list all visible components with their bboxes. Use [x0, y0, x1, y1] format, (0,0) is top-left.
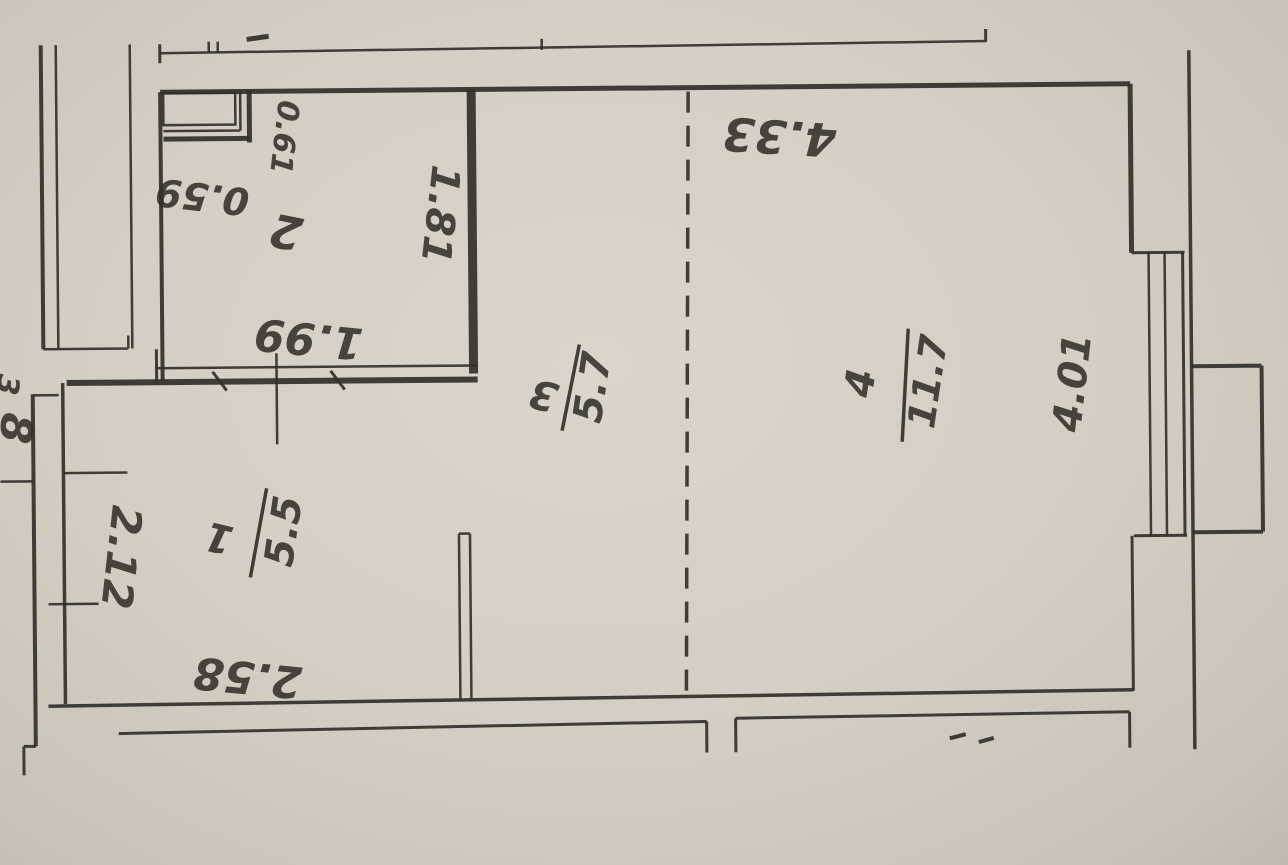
wall-left-foot	[24, 746, 36, 775]
window-tick-upper	[63, 473, 127, 474]
balcony-outline	[1192, 366, 1263, 533]
room2-number: 2	[265, 202, 307, 261]
wall-bottom-outer-left	[119, 721, 707, 757]
dim-top-width: 4.33	[721, 106, 839, 167]
corridor-wall-b	[56, 45, 59, 349]
duct-shaft	[163, 90, 249, 143]
room1-label: 1 5.5	[199, 488, 312, 578]
floor-plan-drawing: 4.33 0.59 0.61 1.81 1.99 2.12 2.58 4.01 …	[0, 0, 1288, 865]
duct-box	[163, 93, 235, 126]
dim-duct-width: 0.59	[153, 170, 251, 224]
bottom-walls	[48, 690, 1133, 758]
dim-left-wall: 2.12	[91, 503, 151, 612]
plan-group: 4.33 0.59 0.61 1.81 1.99 2.12 2.58 4.01 …	[0, 27, 1265, 819]
wall-room2-bottom-inner	[157, 365, 478, 368]
right-window	[1132, 252, 1187, 535]
top-dimension-line	[160, 41, 987, 53]
room3-label: 3 5.7	[524, 344, 621, 431]
wall-room2-left	[160, 92, 163, 381]
dim-duct-depth: 0.61	[262, 99, 305, 177]
wall-room2-room3	[471, 89, 473, 373]
wall-left-inner	[63, 383, 66, 704]
corridor-wall-a	[41, 45, 44, 349]
building-outer-line	[1189, 50, 1195, 749]
dimension-labels: 4.33 0.59 0.61 1.81 1.99 2.12 2.58 4.01 …	[0, 91, 1105, 818]
room4-number: 4	[836, 366, 886, 401]
dim-room4-wall: 4.01	[1044, 331, 1101, 435]
wall-right-lower	[1132, 536, 1133, 691]
window-outer-pane	[1183, 252, 1185, 535]
room-labels: 2 3 5.7 1 5.5 4 11.7	[197, 196, 959, 578]
clipped-bottom-marks	[950, 734, 994, 742]
room4-label: 4 11.7	[835, 328, 957, 442]
floor-plan-scan: 4.33 0.59 0.61 1.81 1.99 2.12 2.58 4.01 …	[0, 0, 1288, 865]
dim-left-edge-clipped: 8	[0, 410, 43, 446]
partition-stub	[459, 534, 471, 700]
leader-line-199	[276, 353, 277, 444]
room3-area: 5.7	[565, 349, 621, 426]
corridor-walls	[41, 44, 133, 349]
dim-left-edge-clipped-upper: 3	[0, 372, 26, 397]
room1-area: 5.5	[256, 493, 312, 570]
dim-room1-width: 2.58	[191, 646, 304, 707]
window-mullions	[1149, 252, 1167, 535]
top-dim-bar-mark	[247, 36, 269, 39]
corridor-bottom	[43, 335, 128, 349]
duct-wall-horizontal	[164, 138, 250, 139]
corridor-wall-c	[130, 44, 133, 348]
top-dim-marks	[209, 42, 218, 53]
wall-top	[160, 84, 1130, 92]
dim-room2-height: 1.81	[412, 163, 469, 266]
dim-room2-width: 1.99	[252, 308, 365, 369]
loggia-outline	[736, 712, 1130, 752]
wall-right-upper	[1130, 84, 1131, 253]
wall-room1-top	[67, 379, 478, 383]
window-caps	[1132, 252, 1187, 535]
dim-bottom-clipped: 2.50	[842, 755, 948, 810]
wall-left-outer	[33, 394, 36, 746]
room1-number: 1	[200, 512, 238, 563]
room3-number: 3	[525, 369, 563, 420]
dashed-room-divider	[681, 92, 693, 695]
